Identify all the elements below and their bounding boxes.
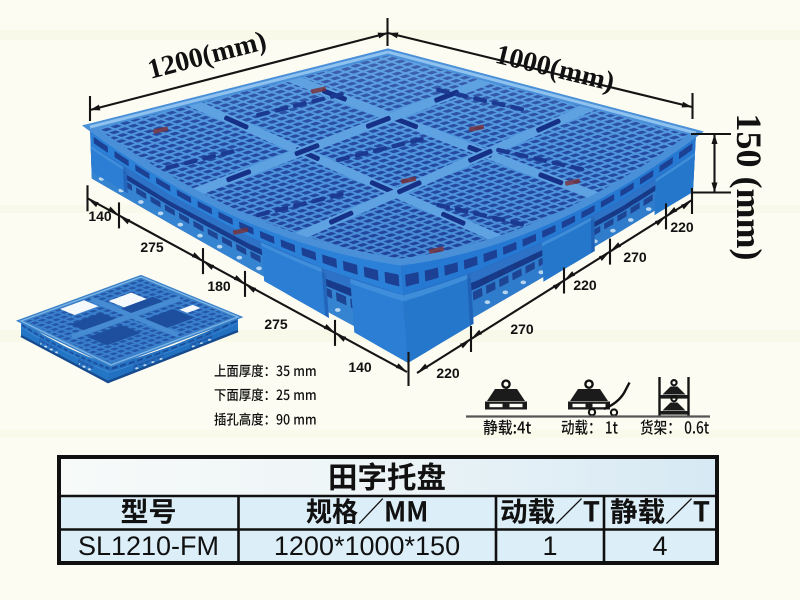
svg-text:275: 275	[264, 316, 288, 332]
svg-text:220: 220	[573, 277, 597, 293]
svg-text:SL1210-FM: SL1210-FM	[78, 531, 219, 561]
svg-text:4: 4	[652, 531, 667, 561]
svg-text:270: 270	[623, 249, 647, 265]
svg-text:220: 220	[436, 365, 460, 381]
svg-text:270: 270	[510, 321, 534, 337]
svg-text:140: 140	[348, 359, 372, 375]
svg-text:140: 140	[88, 208, 112, 224]
svg-text:1: 1	[542, 531, 557, 561]
svg-text:275: 275	[140, 239, 164, 255]
svg-text:1200*1000*150: 1200*1000*150	[274, 531, 460, 561]
svg-text:220: 220	[670, 219, 694, 235]
svg-text:180: 180	[207, 278, 231, 294]
svg-text:150 (mm): 150 (mm)	[729, 114, 769, 261]
